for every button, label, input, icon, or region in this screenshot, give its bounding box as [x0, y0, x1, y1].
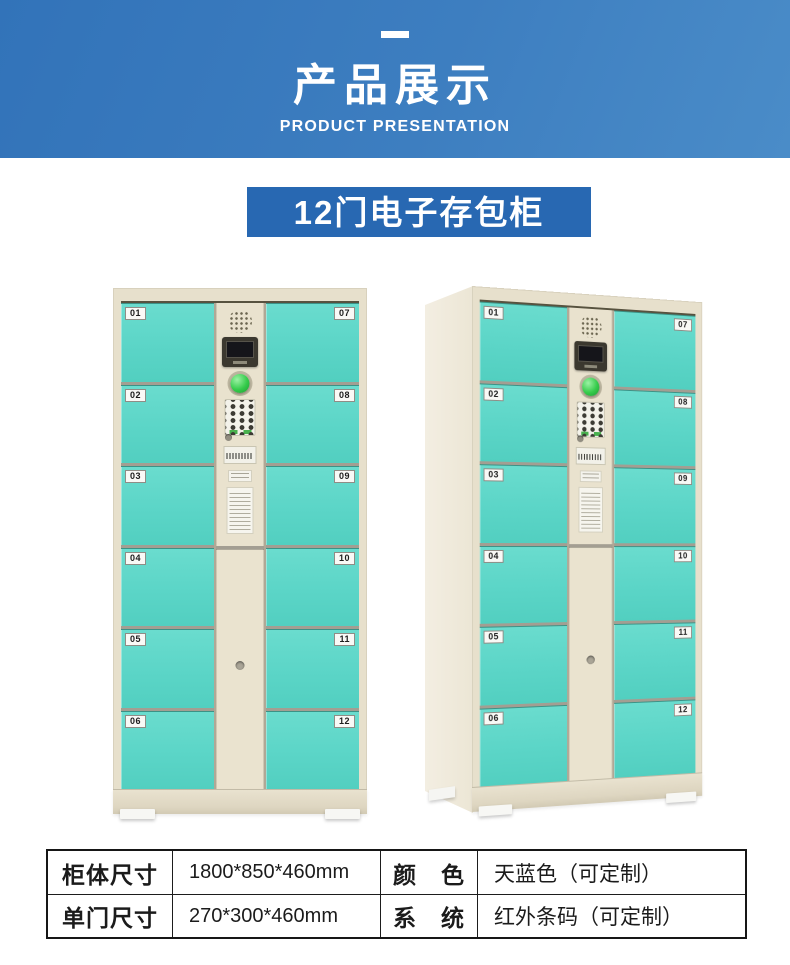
- locker-door: 09: [614, 467, 695, 543]
- keyhole-icon: [577, 435, 583, 442]
- door-number-label: 12: [674, 703, 692, 716]
- keyhole-icon: [225, 434, 232, 441]
- locker-door: 08: [266, 385, 359, 464]
- product-title: 12门电子存包柜: [294, 196, 545, 229]
- locker-door: 07: [266, 303, 359, 382]
- door-number-label: 11: [674, 626, 692, 639]
- hero-dash-decoration: [381, 31, 409, 38]
- locker-door: 06: [480, 704, 567, 786]
- control-panel-column: [216, 303, 264, 789]
- door-number-label: 06: [484, 711, 504, 725]
- left-door-column: 01 02 03 04 05 06: [121, 303, 214, 789]
- info-label: [228, 470, 252, 482]
- cabinet-base: [113, 789, 367, 814]
- barcode-scanner-slot: [224, 446, 257, 464]
- left-door-column: 01 02 03 04 05 06: [480, 302, 567, 787]
- spec-value-cell: 红外条码（可定制）: [477, 894, 745, 937]
- door-number-label: 07: [674, 318, 692, 331]
- door-number-label: 03: [484, 468, 504, 481]
- speaker-icon: [580, 315, 602, 339]
- door-number-label: 11: [334, 633, 355, 646]
- cabinet-front-view: 01 02 03 04 05 06: [113, 288, 367, 814]
- spec-label-cell: 单门尺寸: [48, 894, 172, 937]
- locker-door: 11: [614, 622, 695, 699]
- control-panel: [569, 307, 612, 544]
- cabinet-side-panel: [425, 283, 473, 817]
- locker-door: 04: [480, 546, 567, 624]
- control-panel-column: [569, 307, 612, 780]
- instruction-label: [227, 487, 254, 534]
- keyhole-icon: [236, 661, 245, 670]
- spec-label-cell: 柜体尺寸: [48, 851, 172, 894]
- lcd-label: [584, 365, 597, 369]
- cabinet-doors-area: 01 02 03 04 05 06: [480, 300, 696, 787]
- lcd-screen: [226, 341, 254, 358]
- door-number-label: 04: [484, 549, 504, 562]
- hero-banner: 产品展示 PRODUCT PRESENTATION: [0, 0, 790, 158]
- spec-label-cell: 颜 色: [380, 851, 477, 894]
- door-number-label: 05: [484, 630, 504, 643]
- spec-value-cell: 天蓝色（可定制）: [477, 851, 745, 894]
- keypad: [225, 399, 256, 436]
- locker-door: 06: [121, 711, 214, 790]
- instruction-label: [579, 487, 603, 533]
- cabinet-angled-view: 01 02 03 04 05 06: [425, 283, 707, 828]
- door-number-label: 04: [125, 552, 146, 565]
- locker-door: 08: [614, 389, 695, 466]
- locker-door: 01: [121, 303, 214, 382]
- cabinet-foot: [120, 809, 155, 819]
- door-number-label: 02: [125, 389, 146, 402]
- lcd-display: [574, 341, 607, 372]
- spec-value-cell: 1800*850*460mm: [172, 851, 380, 894]
- locker-door: 02: [121, 385, 214, 464]
- product-presentation-page: 产品展示 PRODUCT PRESENTATION 12门电子存包柜 01 02…: [0, 0, 790, 965]
- info-label: [580, 470, 602, 482]
- locker-door: 10: [266, 548, 359, 627]
- door-number-label: 06: [125, 715, 146, 728]
- cabinet-rotated-front: 01 02 03 04 05 06: [472, 286, 702, 812]
- door-number-label: 03: [125, 470, 146, 483]
- lcd-display: [222, 337, 258, 367]
- green-open-button: [582, 377, 599, 396]
- cabinet-foot: [325, 809, 360, 819]
- control-panel: [216, 303, 264, 546]
- lcd-screen: [578, 345, 603, 363]
- locker-door: 07: [614, 310, 695, 389]
- locker-door: 12: [614, 699, 695, 778]
- hero-title: 产品展示: [293, 64, 497, 108]
- door-number-label: 08: [334, 389, 355, 402]
- locker-door: 03: [480, 464, 567, 542]
- spec-value-cell: 270*300*460mm: [172, 894, 380, 937]
- product-title-banner: 12门电子存包柜: [247, 187, 591, 237]
- door-number-label: 10: [674, 549, 692, 561]
- right-door-column: 07 08 09 10 11 12: [614, 310, 695, 777]
- door-number-label: 05: [125, 633, 146, 646]
- door-number-label: 02: [484, 387, 504, 401]
- locker-door: 11: [266, 629, 359, 708]
- keypad: [577, 401, 605, 438]
- door-number-label: 10: [334, 552, 355, 565]
- speaker-icon: [228, 310, 252, 333]
- barcode-scanner-slot: [576, 447, 606, 465]
- locker-door: 01: [480, 302, 567, 384]
- locker-door: 10: [614, 546, 695, 622]
- cabinet-doors-area: 01 02 03 04 05 06: [121, 301, 359, 789]
- cabinet-body: 01 02 03 04 05 06: [113, 288, 367, 814]
- cabinet-foot: [666, 791, 696, 803]
- spec-label-cell: 系 统: [380, 894, 477, 937]
- door-number-label: 12: [334, 715, 355, 728]
- keyhole-icon: [587, 655, 595, 664]
- door-number-label: 01: [125, 307, 146, 320]
- locker-door: 12: [266, 711, 359, 790]
- center-maintenance-door: [216, 549, 264, 789]
- locker-door: 09: [266, 466, 359, 545]
- door-number-label: 08: [674, 395, 692, 408]
- door-number-label: 09: [674, 472, 692, 485]
- lcd-label: [233, 361, 247, 364]
- spec-table: 柜体尺寸 1800*850*460mm 颜 色 天蓝色（可定制） 单门尺寸 27…: [46, 849, 747, 939]
- locker-door: 03: [121, 466, 214, 545]
- cabinet-body: 01 02 03 04 05 06: [472, 286, 702, 812]
- locker-door: 05: [121, 629, 214, 708]
- locker-door: 02: [480, 383, 567, 463]
- center-maintenance-door: [569, 547, 612, 781]
- green-open-button: [231, 374, 250, 393]
- locker-door: 04: [121, 548, 214, 627]
- door-number-label: 09: [334, 470, 355, 483]
- cabinet-foot: [479, 804, 512, 816]
- locker-door: 05: [480, 625, 567, 705]
- door-number-label: 01: [484, 306, 504, 320]
- door-number-label: 07: [334, 307, 355, 320]
- right-door-column: 07 08 09 10 11 12: [266, 303, 359, 789]
- hero-subtitle: PRODUCT PRESENTATION: [280, 119, 511, 135]
